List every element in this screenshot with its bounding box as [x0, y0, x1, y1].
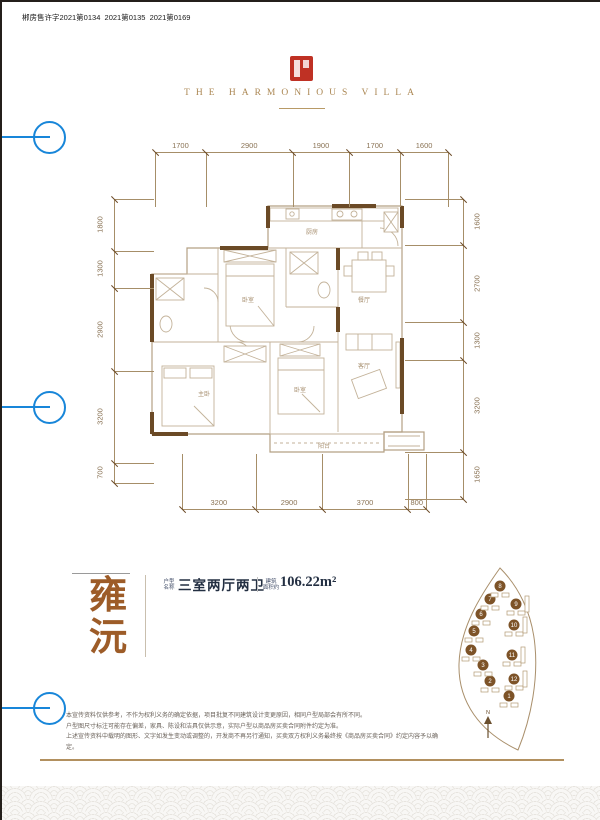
- svg-text:12: 12: [511, 677, 518, 683]
- disclaimer: 本宣传资料仅供参考，不作为权利义务的确定依据，项目批复不同建筑设计变更原因，相同…: [66, 711, 446, 753]
- room-label-balcony: 阳台: [318, 442, 330, 450]
- dimension: 2900: [96, 309, 105, 349]
- vertical-divider: [145, 575, 146, 657]
- circle-icon: [33, 692, 66, 725]
- dimension: 1600: [404, 141, 444, 150]
- dimension: [405, 499, 463, 500]
- site-plan: 123456789101112 N: [442, 557, 577, 767]
- brand-name: THE HARMONIOUS VILLA: [2, 88, 600, 98]
- spec-divider: [257, 577, 258, 592]
- dimension: 1700: [355, 141, 395, 150]
- dimension: [405, 360, 463, 361]
- dimension: [293, 152, 294, 207]
- dimension: 1600: [473, 201, 482, 241]
- disclaimer-line-3: 上述宣传资料中载明的图形、文字如发生变动或调整的，开发商不再另行通知，买卖双方权…: [66, 732, 446, 753]
- circle-icon: [33, 121, 66, 154]
- dimension: [114, 288, 154, 289]
- layout-value: 三室两厅两卫: [178, 574, 265, 594]
- dimension: 1650: [473, 455, 482, 495]
- dimension: [182, 454, 183, 509]
- unit-name-char-1: 雍: [84, 575, 132, 617]
- dimension: 1300: [96, 249, 105, 289]
- dimension: [405, 452, 463, 453]
- dimension: 1300: [473, 321, 482, 361]
- dimension: [155, 152, 448, 153]
- dimension: 3200: [199, 498, 239, 507]
- dimension: 3200: [96, 397, 105, 437]
- circle-icon: [33, 391, 66, 424]
- dimension: [114, 463, 154, 464]
- layout-label: 户型 名称: [160, 579, 178, 591]
- dimension: [256, 454, 257, 509]
- decor-circle-marker-1: [2, 121, 68, 156]
- footer-rule: [40, 759, 564, 761]
- brand-underline: [279, 108, 325, 109]
- decor-circle-marker-2: [2, 391, 68, 426]
- area-value: 106.22m²: [280, 574, 336, 591]
- unit-name-char-2: 沅: [84, 617, 132, 659]
- site-buildings: 123456789101112: [462, 581, 529, 708]
- unit-name: 雍 沅: [84, 575, 132, 659]
- dimension: [114, 199, 115, 483]
- dimension: [400, 152, 401, 207]
- dimension: [349, 152, 350, 207]
- svg-text:11: 11: [509, 653, 516, 659]
- dimension: [114, 483, 154, 484]
- area-label: 建筑 面积约: [262, 579, 280, 591]
- dimension: [206, 152, 207, 207]
- dimension: 2900: [229, 141, 269, 150]
- dimension: 2700: [473, 263, 482, 303]
- brochure-page: 郴房售许字2021第0134 2021第0135 2021第0169 THE H…: [0, 0, 600, 820]
- floor-plan: 厨房 餐厅 客厅 阳台 主卧 卧室 卧室: [102, 127, 477, 527]
- svg-text:N: N: [486, 710, 490, 716]
- dimension: [405, 199, 463, 200]
- dimension: [405, 322, 463, 323]
- dimension: 3700: [345, 498, 385, 507]
- dimension: 1700: [160, 141, 200, 150]
- red-seal-icon: [290, 56, 313, 81]
- dimension: 700: [96, 452, 105, 492]
- dimension: 1800: [96, 204, 105, 244]
- decor-circle-marker-3: [2, 692, 68, 727]
- dimension: [114, 371, 154, 372]
- room-label-kitchen: 厨房: [306, 228, 318, 236]
- room-label-living: 客厅: [358, 362, 370, 370]
- dimension: [114, 199, 154, 200]
- room-label-bedroom-a: 卧室: [242, 296, 254, 304]
- north-arrow-icon: N: [484, 710, 492, 738]
- dimension: [182, 509, 426, 510]
- svg-text:10: 10: [511, 623, 518, 629]
- plan-furniture: [156, 208, 420, 446]
- unit-name-rule: [72, 573, 130, 574]
- disclaimer-line-1: 本宣传资料仅供参考，不作为权利义务的确定依据，项目批复不同建筑设计变更原因，相同…: [66, 711, 446, 722]
- wave-pattern: [2, 786, 600, 820]
- dimension: [114, 251, 154, 252]
- dimension: [155, 152, 156, 207]
- dimension: 3200: [473, 385, 482, 425]
- dimension: [405, 245, 463, 246]
- room-label-dining: 餐厅: [358, 296, 370, 304]
- room-label-master: 主卧: [198, 390, 210, 398]
- dimension: [322, 454, 323, 509]
- sales-permit-numbers: 郴房售许字2021第0134 2021第0135 2021第0169: [22, 12, 190, 23]
- room-label-bedroom-b: 卧室: [294, 386, 306, 394]
- dimension: 1900: [301, 141, 341, 150]
- dimension: 2900: [269, 498, 309, 507]
- disclaimer-line-2: 户型图尺寸标注可能存在偏差，家具、陈设和洁具仅供示意，实际户型以商品房买卖合同附…: [66, 722, 446, 733]
